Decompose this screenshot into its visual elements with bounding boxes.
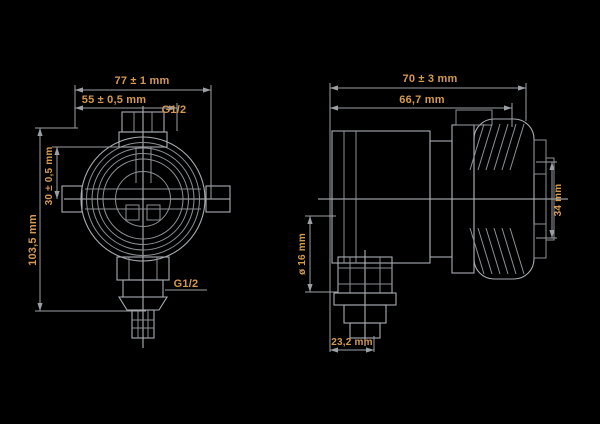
side-body (332, 110, 534, 279)
dim-bottom-offset-label: 23,2 mm (331, 337, 372, 348)
right-view: 70 ± 3 mm 66,7 mm ø 16 mm 34 mm (297, 73, 568, 353)
thread-bottom-label: G1/2 (174, 278, 199, 290)
dim-center-offset-label: 30 ± 0,5 mm (44, 147, 55, 206)
dim-side-height: 34 mm (536, 162, 564, 238)
thread-bottom: G1/2 (165, 278, 207, 290)
dim-depth-body-label: 66,7 mm (399, 94, 444, 106)
thread-top-label: G1/2 (162, 104, 187, 116)
dim-depth-total-label: 70 ± 3 mm (403, 73, 458, 85)
dim-width-body-label: 55 ± 0,5 mm (82, 94, 147, 106)
dim-port-diameter-label: ø 16 mm (297, 233, 308, 275)
dim-bottom-offset: 23,2 mm (330, 336, 374, 353)
dim-depth-total: 70 ± 3 mm (330, 73, 526, 352)
dim-height-total-label: 103,5 mm (27, 214, 39, 266)
dim-side-height-label: 34 mm (553, 184, 564, 217)
technical-drawing: 77 ± 1 mm 55 ± 0,5 mm G1/2 103,5 mm (0, 0, 600, 424)
dim-width-total-label: 77 ± 1 mm (115, 75, 170, 87)
technical-drawing-canvas: 77 ± 1 mm 55 ± 0,5 mm G1/2 103,5 mm (0, 0, 600, 424)
side-bottom-port (334, 250, 396, 346)
left-view: 77 ± 1 mm 55 ± 0,5 mm G1/2 103,5 mm (27, 75, 230, 348)
